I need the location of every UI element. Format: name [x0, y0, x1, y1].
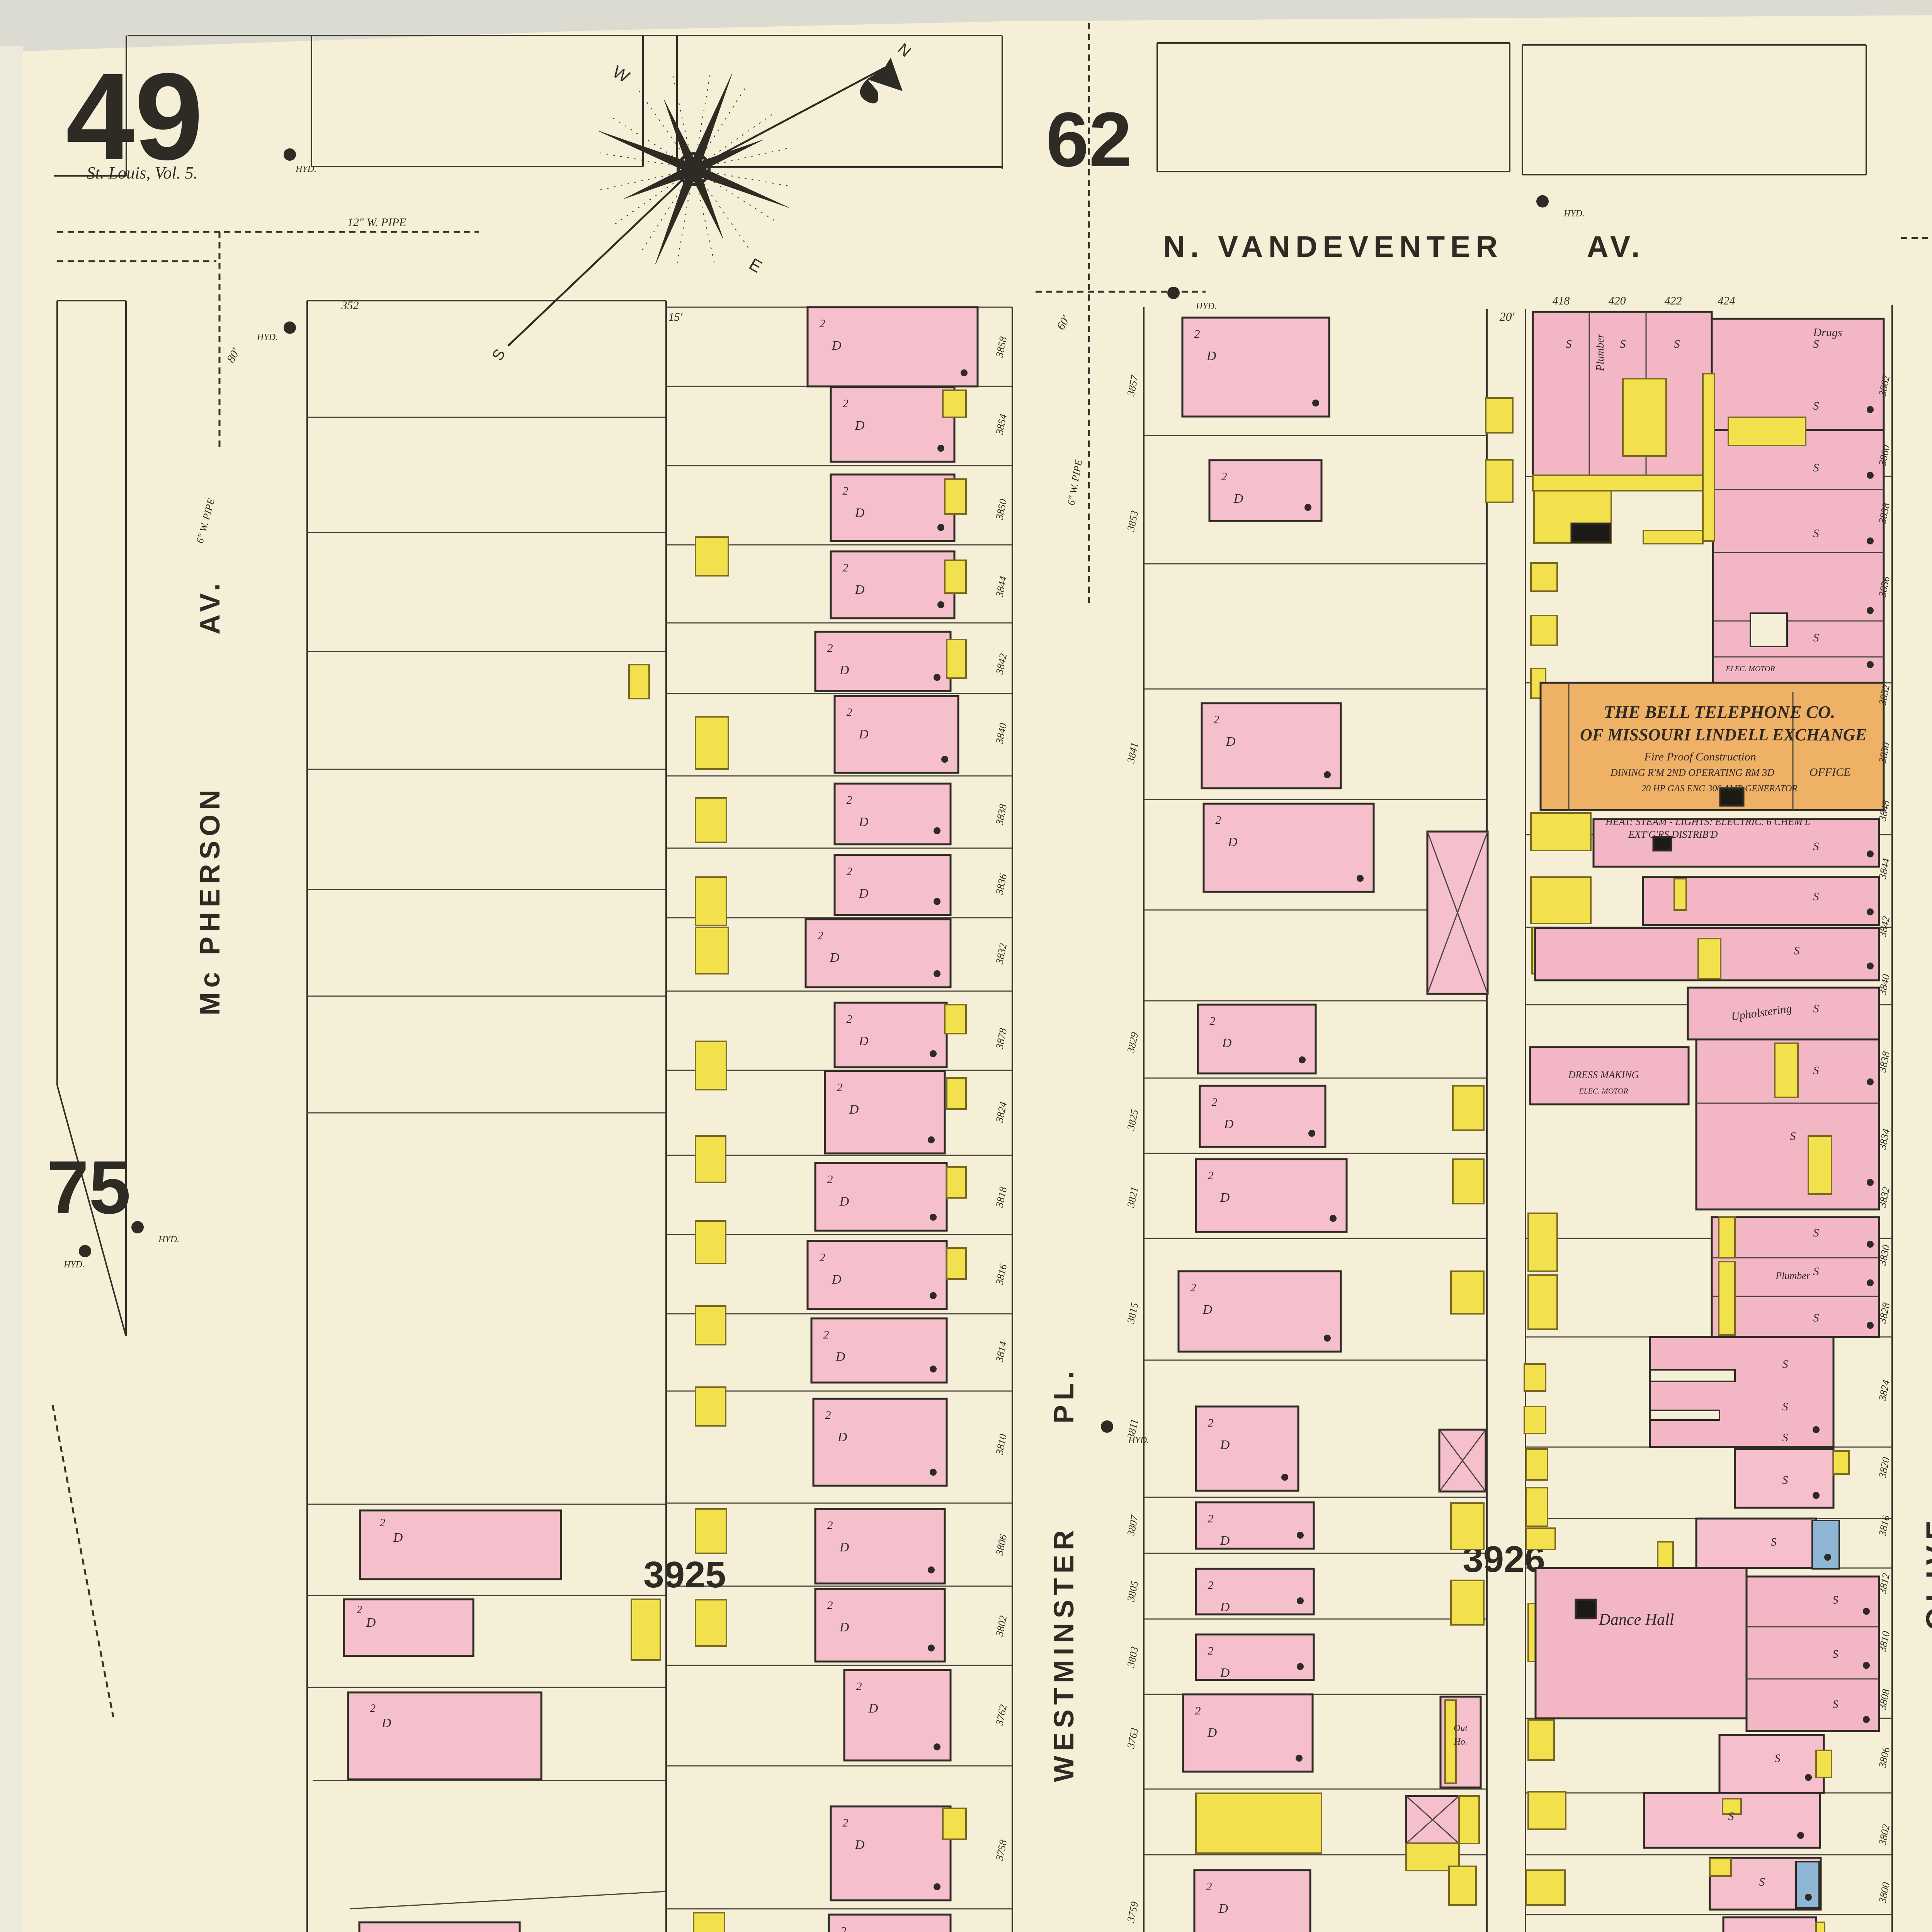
svg-text:HYD.: HYD. [63, 1260, 85, 1270]
svg-text:2: 2 [1210, 1015, 1216, 1027]
svg-text:422: 422 [1665, 294, 1682, 307]
svg-text:2: 2 [1195, 1704, 1201, 1717]
svg-text:S: S [1813, 890, 1819, 903]
svg-text:S: S [1790, 1130, 1796, 1143]
svg-text:D: D [855, 1838, 865, 1852]
svg-text:2: 2 [1208, 1169, 1214, 1182]
svg-text:D: D [855, 583, 865, 597]
svg-text:Ho.: Ho. [1453, 1737, 1467, 1747]
svg-text:D: D [1226, 735, 1236, 749]
svg-text:AV.: AV. [1587, 230, 1643, 264]
svg-text:D: D [1207, 1726, 1217, 1740]
svg-text:S: S [1771, 1536, 1777, 1548]
svg-text:S: S [1813, 1311, 1819, 1324]
svg-text:S: S [1813, 840, 1819, 853]
svg-text:2: 2 [843, 485, 849, 497]
svg-text:2: 2 [370, 1702, 376, 1714]
svg-text:20 HP GAS ENG 300 AMP GENERAT: 20 HP GAS ENG 300 AMP GENERATOR [1641, 784, 1798, 794]
svg-text:352: 352 [341, 299, 359, 312]
svg-text:2: 2 [843, 561, 849, 574]
svg-text:D: D [835, 1350, 845, 1364]
svg-text:S: S [1782, 1358, 1788, 1371]
svg-text:HYD.: HYD. [1563, 209, 1585, 219]
svg-text:ELEC. MOTOR: ELEC. MOTOR [1725, 665, 1775, 673]
svg-text:75: 75 [47, 1145, 131, 1230]
svg-text:D: D [366, 1616, 376, 1630]
svg-text:2: 2 [1212, 1096, 1218, 1109]
svg-text:S: S [1813, 1002, 1819, 1015]
svg-text:D: D [839, 1540, 849, 1554]
svg-text:D: D [839, 1620, 849, 1634]
svg-text:S: S [1813, 527, 1819, 540]
svg-text:D: D [832, 1272, 842, 1287]
svg-text:D: D [830, 951, 840, 965]
svg-text:S: S [1813, 1265, 1819, 1278]
svg-text:THE BELL TELEPHONE CO.: THE BELL TELEPHONE CO. [1604, 702, 1835, 722]
svg-text:EXT'G'RS DISTRIB'D: EXT'G'RS DISTRIB'D [1628, 829, 1718, 840]
svg-text:S: S [1813, 461, 1819, 474]
svg-text:HYD.: HYD. [1196, 301, 1217, 311]
svg-text:S: S [1833, 1648, 1838, 1660]
svg-text:2: 2 [1208, 1417, 1214, 1429]
svg-text:2: 2 [1214, 713, 1219, 726]
svg-text:Mc PHERSON: Mc PHERSON [195, 785, 226, 1015]
svg-text:OF MISSOURI LINDELL EXCHANGE: OF MISSOURI LINDELL EXCHANGE [1580, 725, 1867, 744]
svg-text:2: 2 [843, 1816, 849, 1829]
svg-text:2: 2 [827, 642, 833, 655]
svg-text:D: D [839, 663, 849, 677]
svg-text:D: D [1222, 1036, 1232, 1050]
svg-text:D: D [1220, 1438, 1230, 1452]
svg-text:S: S [1759, 1876, 1765, 1888]
svg-text:Dance Hall: Dance Hall [1599, 1611, 1674, 1629]
svg-text:2: 2 [823, 1328, 829, 1341]
svg-text:Fire Proof Construction: Fire Proof Construction [1644, 750, 1756, 763]
svg-text:HYD.: HYD. [295, 164, 316, 174]
svg-text:S: S [1833, 1594, 1838, 1606]
svg-text:20': 20' [1500, 310, 1515, 323]
svg-text:2: 2 [827, 1599, 833, 1612]
svg-text:2: 2 [847, 794, 852, 806]
svg-text:Plumber: Plumber [1775, 1270, 1810, 1281]
svg-text:S: S [1566, 338, 1572, 350]
svg-text:2: 2 [825, 1409, 831, 1422]
svg-text:Out: Out [1454, 1723, 1468, 1733]
svg-text:2: 2 [818, 929, 823, 942]
svg-text:HYD.: HYD. [257, 332, 278, 342]
svg-text:418: 418 [1553, 294, 1570, 307]
svg-text:D: D [855, 418, 865, 433]
svg-text:S: S [1813, 1064, 1819, 1077]
svg-text:D: D [855, 506, 865, 520]
svg-text:Drugs: Drugs [1813, 326, 1842, 339]
svg-text:D: D [1224, 1117, 1234, 1131]
svg-text:420: 420 [1609, 294, 1626, 307]
svg-text:S: S [1794, 944, 1800, 957]
svg-text:D: D [1233, 492, 1243, 506]
svg-text:S: S [1728, 1810, 1734, 1823]
svg-text:DINING R'M 2ND OPERATING RM 3: DINING R'M 2ND OPERATING RM 3D [1610, 767, 1774, 778]
svg-text:2: 2 [357, 1604, 362, 1616]
svg-text:St. Louis, Vol. 5.: St. Louis, Vol. 5. [87, 163, 197, 182]
svg-text:D: D [1220, 1600, 1230, 1614]
svg-text:2: 2 [847, 865, 852, 878]
svg-text:12" W. PIPE: 12" W. PIPE [347, 216, 406, 229]
svg-text:D: D [1206, 349, 1216, 363]
svg-text:D: D [1228, 835, 1238, 849]
svg-text:D: D [1220, 1190, 1230, 1205]
svg-text:424: 424 [1718, 294, 1735, 307]
svg-text:OFFICE: OFFICE [1810, 766, 1851, 779]
svg-text:Plumber: Plumber [1594, 334, 1606, 372]
svg-text:2: 2 [1208, 1645, 1214, 1657]
svg-text:2: 2 [856, 1680, 862, 1693]
svg-text:D: D [832, 338, 842, 353]
svg-text:2: 2 [837, 1081, 843, 1094]
svg-text:OLIVE: OLIVE [1920, 1515, 1932, 1630]
svg-text:2: 2 [820, 1251, 825, 1264]
svg-text:D: D [859, 886, 869, 901]
svg-text:3925: 3925 [643, 1554, 726, 1595]
svg-text:D: D [859, 815, 869, 829]
svg-text:2: 2 [820, 317, 825, 330]
svg-text:D: D [837, 1430, 847, 1444]
svg-text:WESTMINSTER: WESTMINSTER [1049, 1526, 1080, 1782]
svg-text:2: 2 [843, 397, 849, 410]
svg-text:PL.: PL. [1049, 1366, 1080, 1423]
svg-text:HYD.: HYD. [158, 1235, 179, 1245]
svg-text:D: D [381, 1716, 391, 1730]
svg-text:HEAT: STEAM - LIGHTS: ELECTRIC: HEAT: STEAM - LIGHTS: ELECTRIC. 6 CHEM'L [1605, 816, 1810, 827]
svg-text:2: 2 [827, 1519, 833, 1532]
svg-text:2: 2 [1216, 814, 1221, 827]
svg-text:DRESS MAKING: DRESS MAKING [1568, 1069, 1639, 1080]
svg-text:D: D [1220, 1666, 1230, 1680]
svg-text:S: S [1813, 1226, 1819, 1239]
svg-text:2: 2 [1221, 470, 1227, 483]
svg-text:N. VANDEVENTER: N. VANDEVENTER [1163, 230, 1503, 264]
svg-text:S: S [1674, 338, 1680, 350]
svg-text:S: S [1782, 1474, 1788, 1486]
svg-text:S: S [1833, 1698, 1838, 1711]
svg-text:S: S [1620, 338, 1626, 350]
svg-text:D: D [859, 1034, 869, 1048]
svg-text:D: D [868, 1701, 878, 1716]
svg-text:2: 2 [1194, 328, 1200, 340]
svg-text:D: D [1220, 1534, 1230, 1548]
svg-text:D: D [849, 1102, 859, 1117]
svg-text:D: D [393, 1531, 403, 1545]
svg-text:S: S [1813, 631, 1819, 644]
svg-text:D: D [1202, 1303, 1213, 1317]
svg-text:S: S [1782, 1400, 1788, 1413]
svg-text:2: 2 [380, 1517, 385, 1529]
svg-text:2: 2 [827, 1173, 833, 1186]
svg-text:S: S [1775, 1752, 1781, 1765]
svg-text:D: D [1218, 1901, 1228, 1916]
svg-text:2: 2 [1208, 1579, 1214, 1592]
svg-text:2: 2 [1206, 1880, 1212, 1893]
svg-text:AV.: AV. [195, 579, 226, 634]
svg-text:S: S [1813, 338, 1819, 350]
svg-text:D: D [839, 1194, 849, 1209]
svg-text:2: 2 [847, 1013, 852, 1026]
svg-text:15': 15' [668, 311, 683, 323]
svg-text:2: 2 [1208, 1512, 1214, 1525]
svg-text:ELEC. MOTOR: ELEC. MOTOR [1578, 1087, 1628, 1095]
svg-text:2: 2 [841, 1925, 847, 1932]
svg-text:D: D [859, 727, 869, 742]
svg-text:S: S [1813, 400, 1819, 412]
svg-text:2: 2 [1190, 1281, 1196, 1294]
svg-text:S: S [1782, 1431, 1788, 1444]
svg-text:2: 2 [847, 706, 852, 719]
